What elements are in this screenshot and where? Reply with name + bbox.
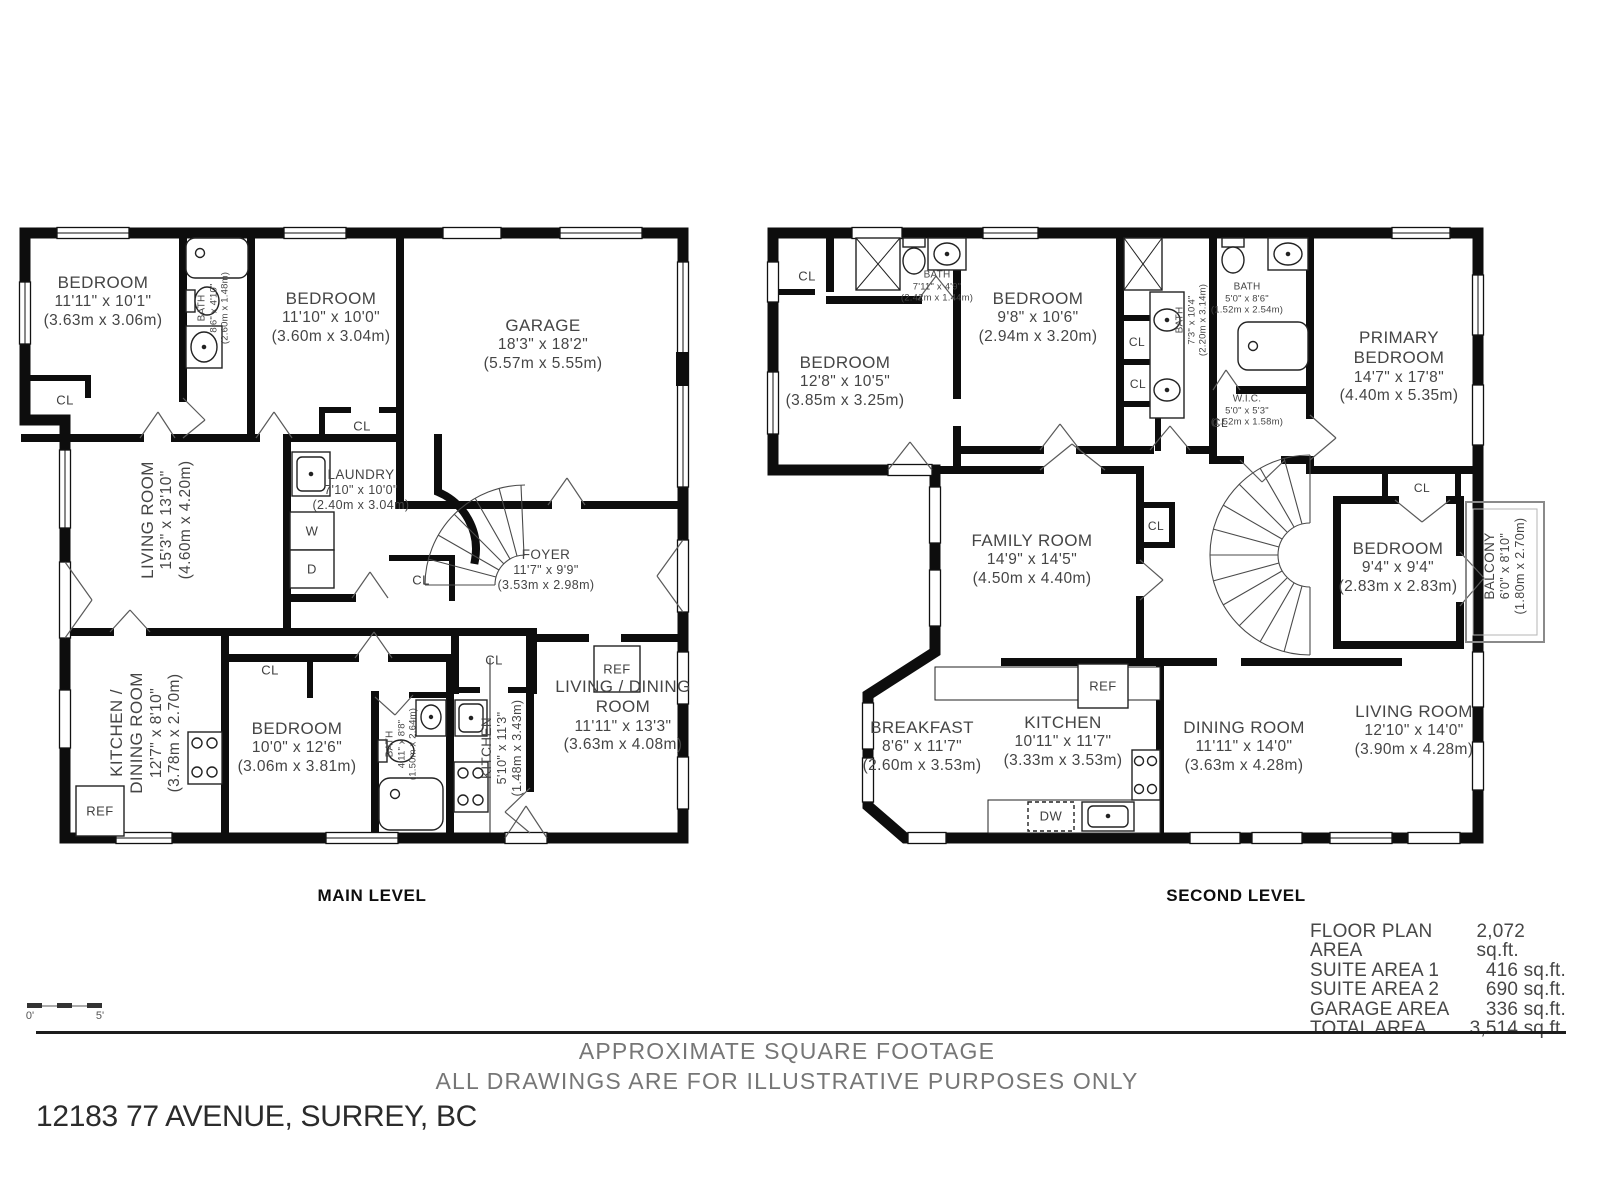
room-label-kitchen-second: KITCHEN10'11" x 11'7"(3.33m x 3.53m) bbox=[1004, 713, 1123, 771]
room-name: BATH bbox=[1175, 284, 1187, 356]
room-dims-ft: 9'4" x 9'4" bbox=[1339, 560, 1458, 579]
room-dims-ft: 18'3" x 18'2" bbox=[484, 337, 603, 356]
area-row: GARAGE AREA336 sq.ft. bbox=[1310, 1000, 1566, 1019]
closet-label: CL bbox=[412, 573, 430, 588]
area-label: SUITE AREA 2 bbox=[1310, 980, 1439, 999]
room-name: KITCHEN / DINING ROOM bbox=[107, 672, 148, 794]
closet-label: CL bbox=[1212, 416, 1228, 430]
room-dims-ft: 12'10" x 14'0" bbox=[1355, 723, 1474, 742]
room-dims-ft: 12'8" x 10'5" bbox=[786, 374, 905, 393]
room-dims-ft: 11'10" x 10'0" bbox=[272, 310, 391, 329]
area-value: 416 sq.ft. bbox=[1486, 961, 1566, 980]
closet-label: CL bbox=[485, 653, 503, 668]
room-dims-ft: 10'0" x 12'6" bbox=[238, 740, 357, 759]
room-dims-m: (3.33m x 3.53m) bbox=[1004, 752, 1123, 771]
room-name: BEDROOM bbox=[786, 353, 905, 373]
scale-end-label: 5' bbox=[96, 1010, 104, 1022]
scale-start-label: 0' bbox=[26, 1010, 34, 1022]
room-label-balcony: BALCONY6'0" x 8'10"(1.80m x 2.70m) bbox=[1482, 517, 1528, 614]
room-label-kitchen-main: KITCHEN5'10" x 11'3"(1.48m x 3.43m) bbox=[479, 699, 525, 796]
washer-label: W bbox=[306, 524, 319, 539]
room-label-bedroom-b: BEDROOM9'8" x 10'6"(2.94m x 3.20m) bbox=[979, 289, 1098, 347]
room-dims-ft: 4'11" x 8'8" bbox=[397, 708, 408, 780]
area-summary-table: FLOOR PLAN AREA2,072 sq.ft. SUITE AREA 1… bbox=[1310, 922, 1566, 1038]
area-label: SUITE AREA 1 bbox=[1310, 961, 1439, 980]
room-label-foyer: FOYER11'7" x 9'9"(3.53m x 2.98m) bbox=[497, 547, 594, 593]
room-dims-ft: 7'11" x 4'9" bbox=[901, 282, 973, 293]
room-dims-m: (4.40m x 5.35m) bbox=[1340, 387, 1459, 406]
area-label: FLOOR PLAN AREA bbox=[1310, 922, 1476, 961]
room-dims-ft: 5'10" x 11'3" bbox=[495, 699, 510, 796]
room-name: BEDROOM bbox=[44, 273, 163, 293]
room-name: BATH bbox=[901, 270, 973, 282]
room-name: LIVING / DINING ROOM bbox=[555, 677, 690, 718]
room-label-primary-bedroom: PRIMARY BEDROOM14'7" x 17'8"(4.40m x 5.3… bbox=[1340, 328, 1459, 406]
property-address: 12183 77 AVENUE, SURREY, BC bbox=[36, 1100, 477, 1134]
room-name: BEDROOM bbox=[238, 719, 357, 739]
room-name: BREAKFAST bbox=[863, 718, 982, 738]
room-name: KITCHEN bbox=[1004, 713, 1123, 733]
closet-label: CL bbox=[353, 419, 371, 434]
room-name: DINING ROOM bbox=[1183, 718, 1305, 738]
room-label-bedroom-a: BEDROOM12'8" x 10'5"(3.85m x 3.25m) bbox=[786, 353, 905, 411]
room-label-garage: GARAGE18'3" x 18'2"(5.57m x 5.55m) bbox=[484, 316, 603, 374]
second-level-title: SECOND LEVEL bbox=[1166, 886, 1305, 906]
room-dims-m: (1.50m x 2.64m) bbox=[408, 708, 419, 780]
room-dims-ft: 11'11" x 10'1" bbox=[44, 294, 163, 313]
room-name: LIVING ROOM bbox=[138, 461, 158, 580]
room-name: KITCHEN bbox=[479, 699, 495, 796]
room-dims-ft: 14'9" x 14'5" bbox=[972, 552, 1093, 571]
room-dims-m: (2.42m x 1.44m) bbox=[901, 293, 973, 304]
room-label-living-room-second: LIVING ROOM12'10" x 14'0"(3.90m x 4.28m) bbox=[1355, 702, 1474, 760]
dryer-label: D bbox=[307, 562, 317, 577]
room-name: LAUNDRY bbox=[312, 467, 409, 483]
room-name: BALCONY bbox=[1482, 517, 1498, 614]
room-name: BEDROOM bbox=[272, 289, 391, 309]
room-dims-m: (3.85m x 3.25m) bbox=[786, 392, 905, 411]
room-name: BEDROOM bbox=[1339, 539, 1458, 559]
room-label-living-room: LIVING ROOM15'3" x 13'10"(4.60m x 4.20m) bbox=[138, 461, 196, 580]
room-dims-ft: 11'7" x 9'9" bbox=[497, 563, 594, 578]
room-name: PRIMARY BEDROOM bbox=[1340, 328, 1459, 369]
room-dims-ft: 14'7" x 17'8" bbox=[1340, 369, 1459, 388]
room-dims-ft: 15'3" x 13'10" bbox=[159, 461, 178, 580]
room-name: LIVING ROOM bbox=[1355, 702, 1474, 722]
area-row: TOTAL AREA3,514 sq.ft. bbox=[1310, 1019, 1566, 1038]
footer-caption-2: ALL DRAWINGS ARE FOR ILLUSTRATIVE PURPOS… bbox=[435, 1068, 1138, 1095]
room-label-family-room: FAMILY ROOM14'9" x 14'5"(4.50m x 4.40m) bbox=[972, 531, 1093, 589]
room-dims-m: (3.53m x 2.98m) bbox=[497, 578, 594, 593]
room-label-kitchen-dining: KITCHEN / DINING ROOM12'7" x 8'10"(3.78m… bbox=[107, 672, 185, 794]
room-dims-m: (1.52m x 2.54m) bbox=[1211, 305, 1283, 316]
closet-label: CL bbox=[1130, 377, 1146, 391]
room-dims-m: (2.94m x 3.20m) bbox=[979, 328, 1098, 347]
area-label: GARAGE AREA bbox=[1310, 1000, 1449, 1019]
room-dims-ft: 12'7" x 8'10" bbox=[148, 672, 167, 794]
room-dims-ft: 5'0" x 8'6" bbox=[1211, 294, 1283, 305]
area-row: FLOOR PLAN AREA2,072 sq.ft. bbox=[1310, 922, 1566, 961]
room-name: BATH bbox=[385, 708, 397, 780]
room-dims-ft: 10'11" x 11'7" bbox=[1004, 734, 1123, 753]
room-label-laundry: LAUNDRY7'10" x 10'0"(2.40m x 3.04m) bbox=[312, 467, 409, 513]
area-row: SUITE AREA 1416 sq.ft. bbox=[1310, 961, 1566, 980]
room-label-bath-c: BATH5'0" x 8'6"(1.52m x 2.54m) bbox=[1211, 282, 1283, 317]
scale-bar bbox=[27, 1003, 102, 1008]
room-name: GARAGE bbox=[484, 316, 603, 336]
room-dims-m: (5.57m x 5.55m) bbox=[484, 355, 603, 374]
area-value: 2,072 sq.ft. bbox=[1476, 922, 1566, 961]
dishwasher-label: DW bbox=[1040, 809, 1063, 824]
room-dims-m: (2.20m x 3.14m) bbox=[1198, 284, 1209, 356]
closet-label: CL bbox=[1129, 335, 1145, 349]
room-name: FAMILY ROOM bbox=[972, 531, 1093, 551]
room-label-living-dining: LIVING / DINING ROOM11'11" x 13'3"(3.63m… bbox=[555, 677, 690, 755]
room-name: FOYER bbox=[497, 547, 594, 563]
room-dims-m: (2.60m x 3.53m) bbox=[863, 757, 982, 776]
room-name: BATH bbox=[1211, 282, 1283, 294]
room-dims-ft: 7'3" x 10'4" bbox=[1187, 284, 1198, 356]
area-value: 3,514 sq.ft. bbox=[1470, 1019, 1566, 1038]
area-label: TOTAL AREA bbox=[1310, 1019, 1427, 1038]
closet-label: CL bbox=[1148, 519, 1164, 533]
room-dims-m: (2.60m x 1.48m) bbox=[220, 272, 231, 344]
room-dims-m: (3.06m x 3.81m) bbox=[238, 758, 357, 777]
room-dims-m: (3.63m x 4.08m) bbox=[555, 736, 690, 755]
main-level-title: MAIN LEVEL bbox=[318, 886, 427, 906]
room-dims-ft: 9'8" x 10'6" bbox=[979, 310, 1098, 329]
room-dims-ft: 11'11" x 14'0" bbox=[1183, 739, 1305, 758]
footer-divider bbox=[36, 1031, 1566, 1034]
fridge-label: REF bbox=[86, 804, 114, 819]
closet-label: CL bbox=[56, 393, 74, 408]
room-label-bath-1: BATH8'6" x 4'10"(2.60m x 1.48m) bbox=[197, 272, 232, 344]
room-dims-ft: 8'6" x 4'10" bbox=[209, 272, 220, 344]
area-value: 690 sq.ft. bbox=[1486, 980, 1566, 999]
room-dims-ft: 7'10" x 10'0" bbox=[312, 483, 409, 498]
room-label-bedroom-1: BEDROOM11'11" x 10'1"(3.63m x 3.06m) bbox=[44, 273, 163, 331]
room-dims-m: (3.60m x 3.04m) bbox=[272, 328, 391, 347]
room-label-bedroom-c: BEDROOM9'4" x 9'4"(2.83m x 2.83m) bbox=[1339, 539, 1458, 597]
room-dims-ft: 11'11" x 13'3" bbox=[555, 718, 690, 737]
closet-label: CL bbox=[798, 269, 816, 284]
room-dims-m: (2.40m x 3.04m) bbox=[312, 498, 409, 513]
room-label-bedroom-2: BEDROOM11'10" x 10'0"(3.60m x 3.04m) bbox=[272, 289, 391, 347]
room-dims-m: (1.48m x 3.43m) bbox=[510, 699, 525, 796]
room-name: W.I.C. bbox=[1211, 394, 1283, 406]
room-label-breakfast: BREAKFAST8'6" x 11'7"(2.60m x 3.53m) bbox=[863, 718, 982, 776]
room-label-bath-a: BATH7'11" x 4'9"(2.42m x 1.44m) bbox=[901, 270, 973, 305]
area-row: SUITE AREA 2690 sq.ft. bbox=[1310, 980, 1566, 999]
fridge-label: REF bbox=[1089, 679, 1117, 694]
room-dims-m: (3.90m x 4.28m) bbox=[1355, 741, 1474, 760]
room-label-bath-2: BATH4'11" x 8'8"(1.50m x 2.64m) bbox=[385, 708, 420, 780]
room-dims-m: (4.50m x 4.40m) bbox=[972, 570, 1093, 589]
closet-label: CL bbox=[1414, 481, 1430, 495]
room-name: BATH bbox=[197, 272, 209, 344]
fridge-label: REF bbox=[603, 662, 631, 677]
room-label-dining-room: DINING ROOM11'11" x 14'0"(3.63m x 4.28m) bbox=[1183, 718, 1305, 776]
room-label-bedroom-3: BEDROOM10'0" x 12'6"(3.06m x 3.81m) bbox=[238, 719, 357, 777]
room-dims-m: (1.80m x 2.70m) bbox=[1513, 517, 1528, 614]
room-dims-m: (3.78m x 2.70m) bbox=[166, 672, 185, 794]
room-dims-ft: 8'6" x 11'7" bbox=[863, 739, 982, 758]
room-name: BEDROOM bbox=[979, 289, 1098, 309]
room-dims-m: (2.83m x 2.83m) bbox=[1339, 578, 1458, 597]
footer-caption-1: APPROXIMATE SQUARE FOOTAGE bbox=[579, 1038, 995, 1065]
room-dims-m: (3.63m x 4.28m) bbox=[1183, 757, 1305, 776]
room-dims-m: (4.60m x 4.20m) bbox=[177, 461, 196, 580]
closet-label: CL bbox=[261, 663, 279, 678]
room-label-bath-b: BATH7'3" x 10'4"(2.20m x 3.14m) bbox=[1175, 284, 1210, 356]
floor-plan-page: { "footer": { "caption_line1": "APPROXIM… bbox=[0, 0, 1600, 1200]
area-value: 336 sq.ft. bbox=[1486, 1000, 1566, 1019]
room-dims-ft: 6'0" x 8'10" bbox=[1498, 517, 1513, 614]
room-dims-m: (3.63m x 3.06m) bbox=[44, 312, 163, 331]
